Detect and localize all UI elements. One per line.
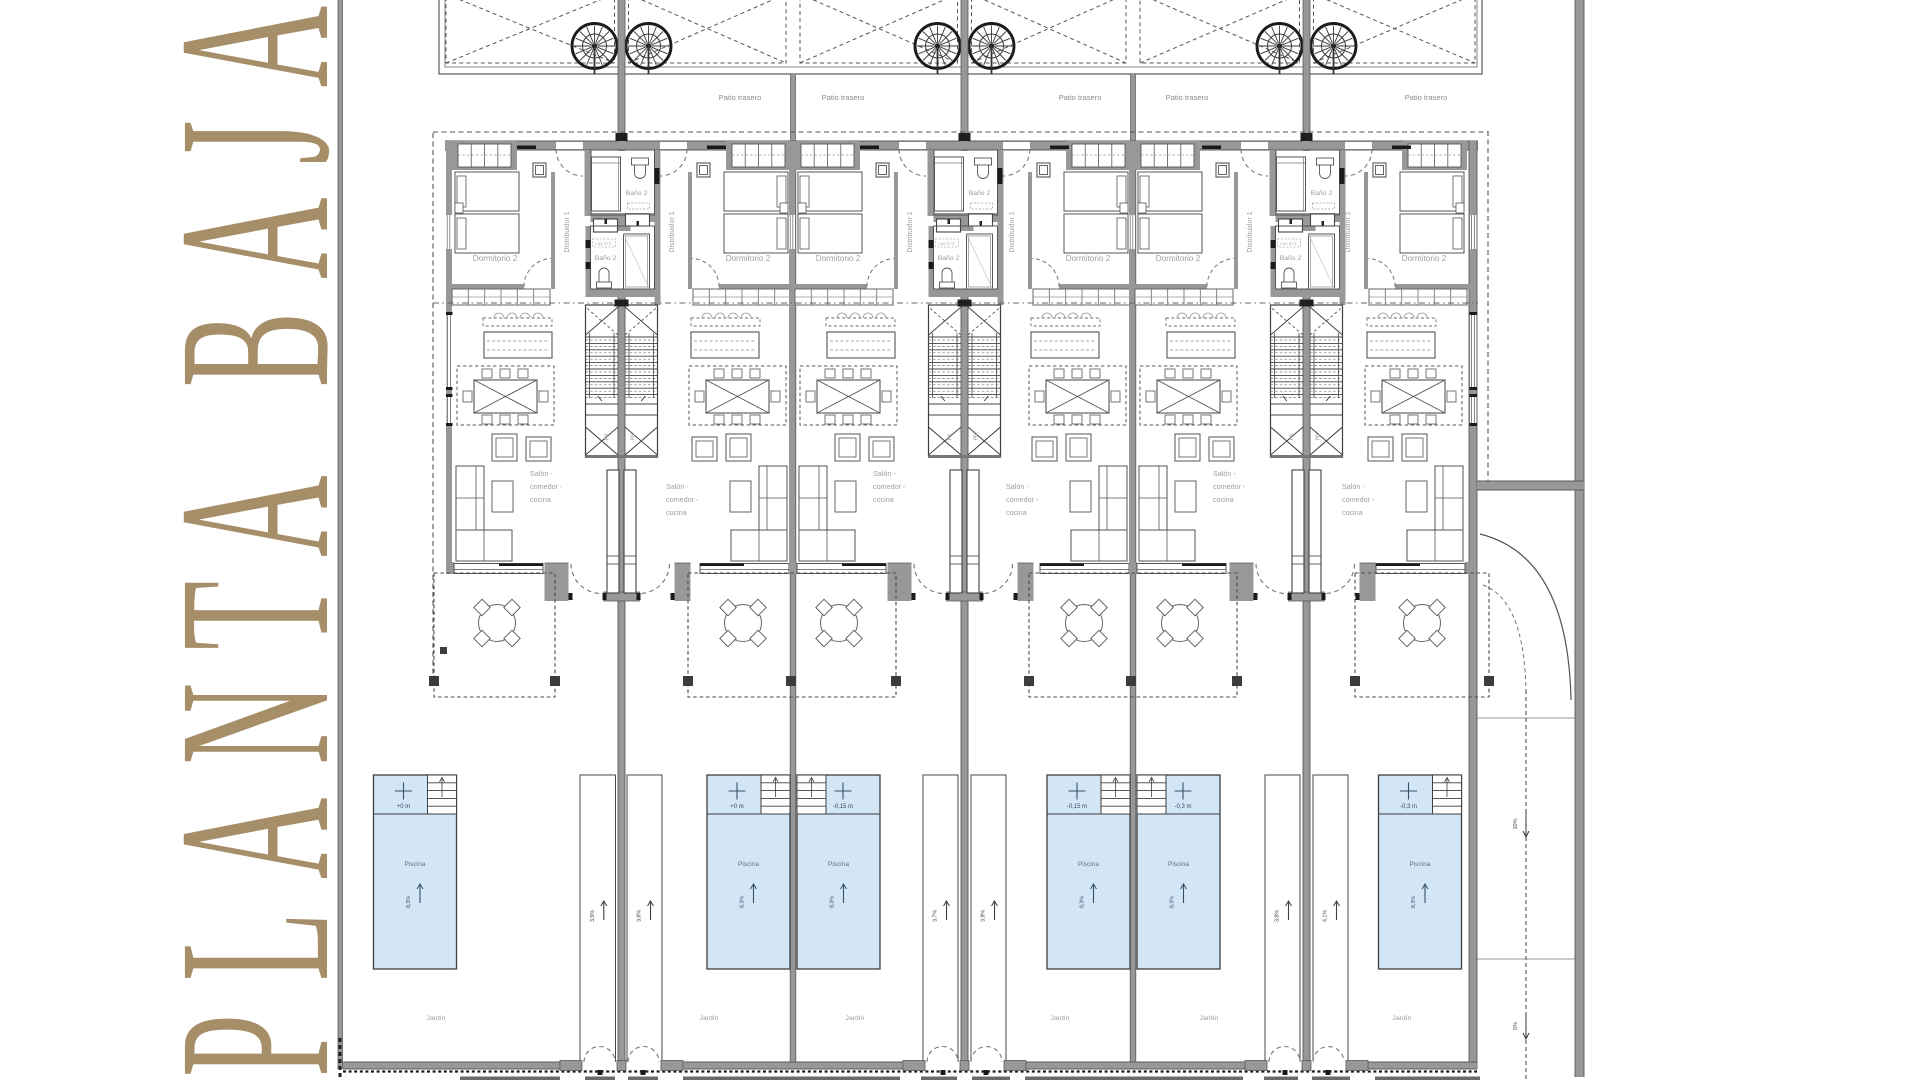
svg-text:Patio trasero: Patio trasero (1166, 93, 1209, 102)
svg-text:4,1%: 4,1% (1323, 910, 1329, 922)
svg-text:3,9%: 3,9% (981, 910, 987, 922)
svg-text:Salón -: Salón - (530, 469, 553, 478)
svg-text:comedor -: comedor - (1213, 482, 1246, 491)
svg-text:Salón -: Salón - (666, 482, 689, 491)
svg-text:Piscina: Piscina (828, 861, 849, 868)
svg-text:Jardín: Jardín (1051, 1015, 1070, 1022)
svg-text:Jardín: Jardín (427, 1015, 446, 1022)
svg-text:Distribuidor 1: Distribuidor 1 (1345, 211, 1352, 252)
svg-text:Jardín: Jardín (700, 1015, 719, 1022)
svg-text:Patio trasero: Patio trasero (1405, 93, 1448, 102)
svg-text:Distribuidor 1: Distribuidor 1 (1009, 211, 1016, 252)
svg-text:cocina: cocina (530, 495, 551, 504)
svg-text:8,3%: 8,3% (1170, 896, 1176, 908)
svg-text:3,8%: 3,8% (1275, 910, 1281, 922)
svg-text:5%: 5% (1513, 1022, 1519, 1030)
svg-text:Baño 2: Baño 2 (595, 255, 617, 262)
svg-text:10%: 10% (1513, 818, 1519, 829)
svg-text:cocina: cocina (1006, 508, 1027, 517)
svg-text:8,3%: 8,3% (1411, 896, 1417, 908)
svg-text:comedor -: comedor - (1342, 495, 1375, 504)
svg-text:8,3%: 8,3% (1080, 896, 1086, 908)
svg-text:PB: PB (631, 433, 637, 440)
svg-text:Dormitorio 2: Dormitorio 2 (816, 254, 861, 263)
svg-text:Lav 2+2: Lav 2+2 (938, 241, 955, 246)
svg-text:cocina: cocina (666, 508, 687, 517)
svg-text:Dormitorio 2: Dormitorio 2 (726, 254, 771, 263)
svg-text:Salón -: Salón - (1213, 469, 1236, 478)
svg-text:8,3%: 8,3% (406, 896, 412, 908)
svg-text:3,6%: 3,6% (637, 910, 643, 922)
svg-text:Distribuidor 1: Distribuidor 1 (1247, 211, 1254, 252)
svg-text:Baño 2: Baño 2 (938, 255, 960, 262)
svg-text:Piscina: Piscina (738, 861, 759, 868)
svg-text:+0 m: +0 m (730, 804, 744, 810)
svg-text:Baño 2: Baño 2 (626, 190, 648, 197)
svg-text:PB: PB (1316, 433, 1322, 440)
svg-text:Patio trasero: Patio trasero (1059, 93, 1102, 102)
svg-text:Salón -: Salón - (873, 469, 896, 478)
svg-text:Piscina: Piscina (405, 861, 426, 868)
svg-text:Piscina: Piscina (1410, 861, 1431, 868)
svg-text:Distribuidor 1: Distribuidor 1 (669, 211, 676, 252)
svg-text:3,5%: 3,5% (590, 910, 596, 922)
svg-text:+0 m: +0 m (397, 804, 411, 810)
svg-text:8,3%: 8,3% (740, 896, 746, 908)
svg-text:3,7%: 3,7% (933, 910, 939, 922)
svg-text:-0,15 m: -0,15 m (1067, 804, 1087, 810)
svg-text:Baño 2: Baño 2 (1311, 190, 1333, 197)
svg-text:Piscina: Piscina (1168, 861, 1189, 868)
svg-text:Lav 2+2: Lav 2+2 (1280, 241, 1297, 246)
svg-text:Jardín: Jardín (1393, 1015, 1412, 1022)
svg-text:Dormitorio 2: Dormitorio 2 (473, 254, 518, 263)
svg-text:Lav 2+2: Lav 2+2 (595, 241, 612, 246)
svg-text:Salón -: Salón - (1342, 482, 1365, 491)
svg-text:-0,3 m: -0,3 m (1400, 804, 1417, 810)
svg-text:Distribuidor 1: Distribuidor 1 (907, 211, 914, 252)
svg-text:Dormitorio 2: Dormitorio 2 (1402, 254, 1447, 263)
svg-text:comedor -: comedor - (1006, 495, 1039, 504)
svg-text:-0,3 m: -0,3 m (1174, 804, 1191, 810)
svg-text:Distribuidor 1: Distribuidor 1 (564, 211, 571, 252)
svg-text:comedor -: comedor - (530, 482, 563, 491)
svg-text:Baño 2: Baño 2 (969, 190, 991, 197)
svg-text:Salón -: Salón - (1006, 482, 1029, 491)
svg-text:Jardín: Jardín (846, 1015, 865, 1022)
svg-text:cocina: cocina (873, 495, 894, 504)
svg-text:PB: PB (948, 433, 954, 440)
svg-text:Piscina: Piscina (1078, 861, 1099, 868)
svg-text:PB: PB (1290, 433, 1296, 440)
svg-text:8,3%: 8,3% (830, 896, 836, 908)
svg-text:Dormitorio 2: Dormitorio 2 (1156, 254, 1201, 263)
svg-text:PB: PB (974, 433, 980, 440)
svg-text:-0,15 m: -0,15 m (833, 804, 853, 810)
svg-text:Baño 2: Baño 2 (1280, 255, 1302, 262)
svg-text:comedor -: comedor - (873, 482, 906, 491)
svg-text:cocina: cocina (1213, 495, 1234, 504)
svg-text:Patio trasero: Patio trasero (719, 93, 762, 102)
svg-text:PB: PB (605, 433, 611, 440)
svg-text:Jardín: Jardín (1200, 1015, 1219, 1022)
svg-text:Dormitorio 2: Dormitorio 2 (1066, 254, 1111, 263)
svg-text:Patio trasero: Patio trasero (822, 93, 865, 102)
svg-text:comedor -: comedor - (666, 495, 699, 504)
svg-text:cocina: cocina (1342, 508, 1363, 517)
